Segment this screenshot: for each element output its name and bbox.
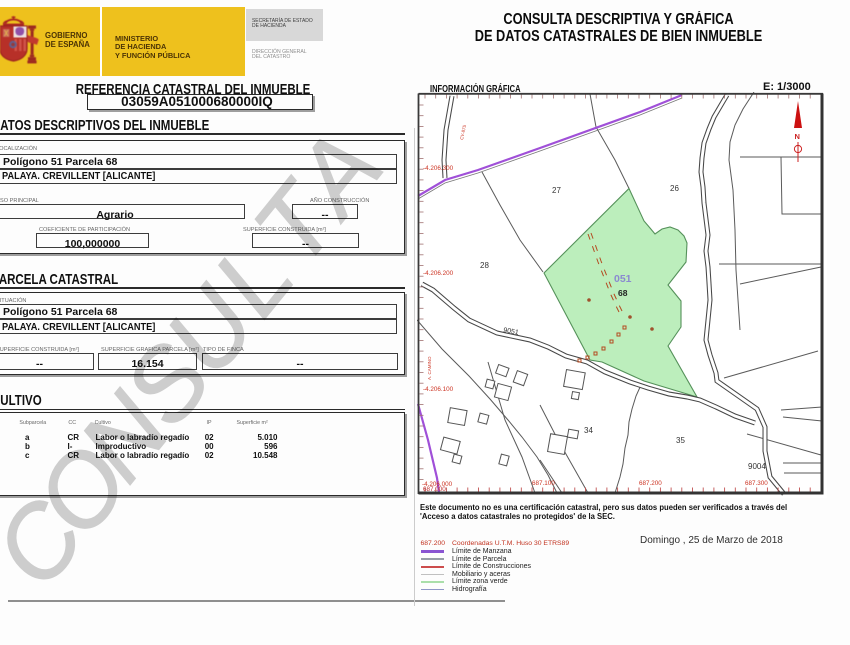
svg-text:68: 68 (618, 288, 628, 298)
svg-text:9004: 9004 (748, 462, 766, 471)
svg-text:-4.206.300: -4.206.300 (423, 165, 454, 172)
svg-text:28: 28 (480, 261, 489, 270)
svg-text:26: 26 (670, 184, 679, 193)
svg-text:27: 27 (552, 186, 561, 195)
svg-text:35: 35 (676, 436, 685, 445)
svg-text:687.200: 687.200 (639, 480, 662, 487)
svg-text:A. CAMINO: A. CAMINO (427, 356, 432, 380)
svg-text:687.100: 687.100 (532, 480, 555, 487)
svg-text:-4.206.200: -4.206.200 (423, 270, 454, 277)
svg-text:051: 051 (614, 273, 632, 285)
svg-text:34: 34 (584, 426, 593, 435)
svg-text:N: N (795, 132, 800, 141)
svg-text:-4.206.100: -4.206.100 (423, 386, 454, 393)
svg-text:687.300: 687.300 (745, 480, 768, 487)
